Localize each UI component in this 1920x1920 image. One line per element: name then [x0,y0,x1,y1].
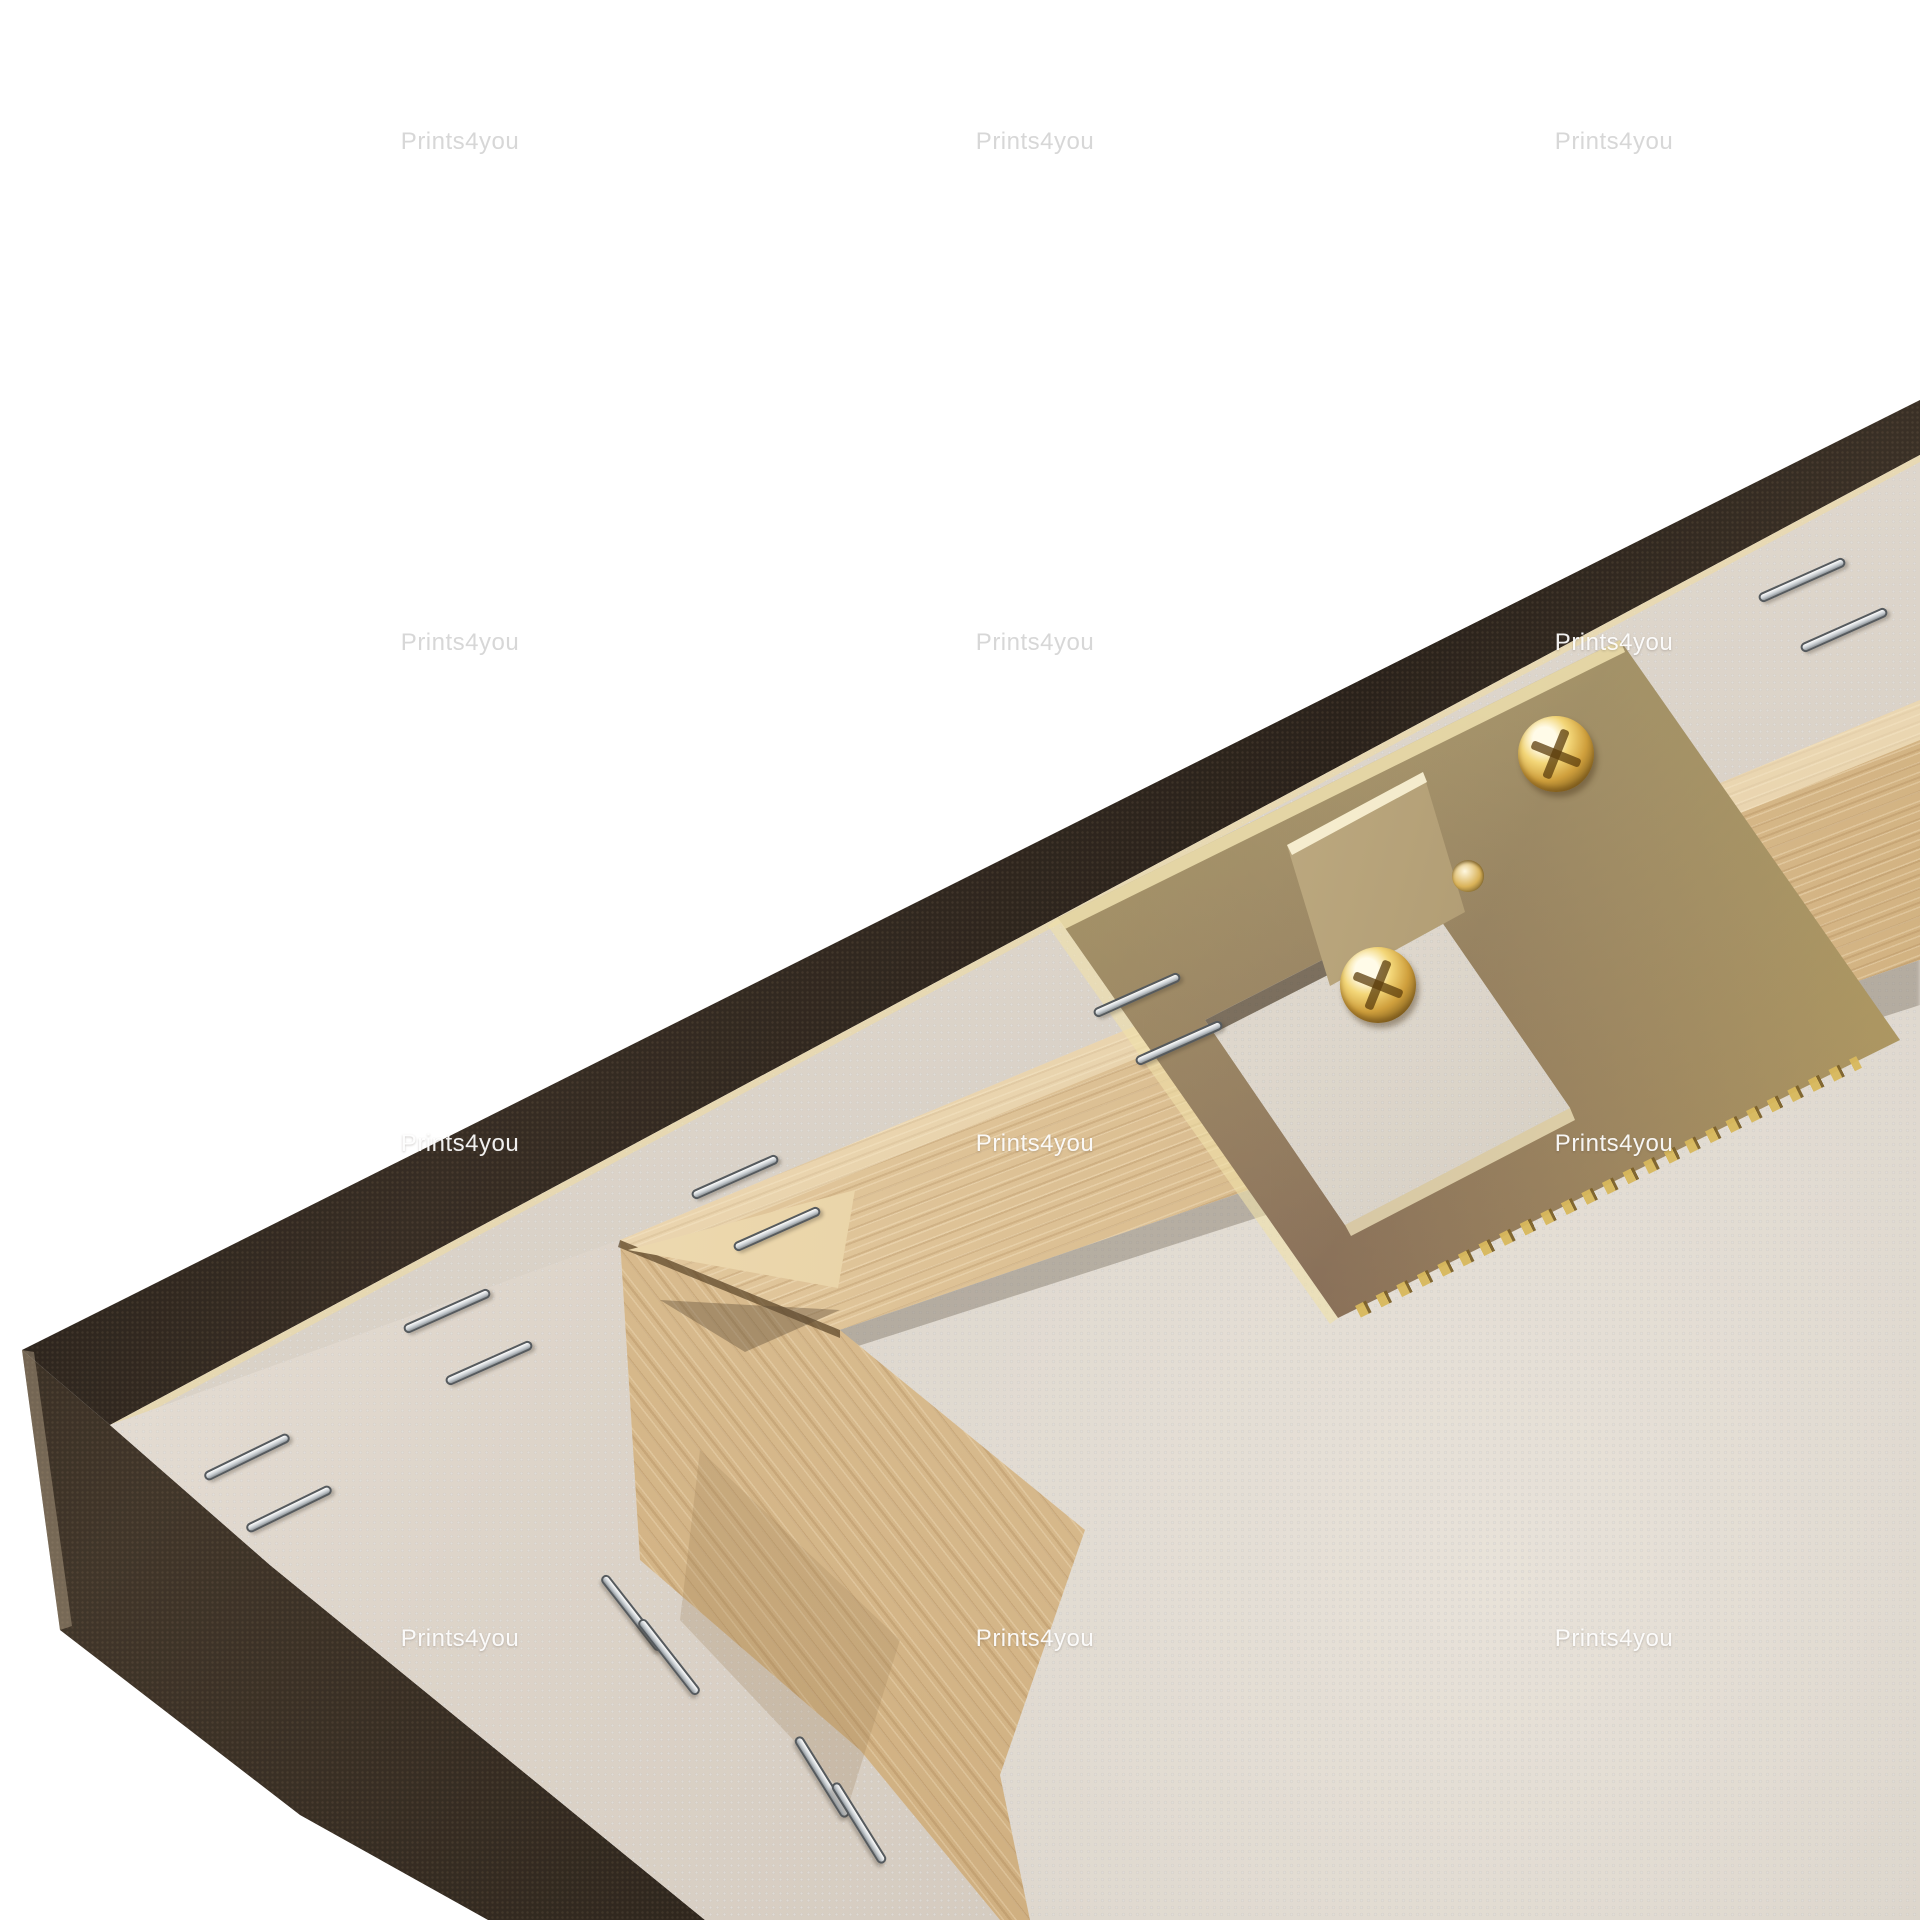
watermark-text: Prints4you [976,128,1094,156]
watermark-text: Prints4you [976,629,1094,657]
watermark-text: Prints4you [976,1625,1094,1653]
watermark-text: Prints4you [401,629,519,657]
watermark-text: Prints4you [1555,128,1673,156]
watermark-text: Prints4you [976,1130,1094,1158]
watermark-layer: Prints4youPrints4youPrints4youPrints4you… [0,0,1920,1920]
watermark-text: Prints4you [401,1130,519,1158]
canvas-print-back-photo: Prints4youPrints4youPrints4youPrints4you… [0,0,1920,1920]
watermark-text: Prints4you [1555,629,1673,657]
watermark-text: Prints4you [401,128,519,156]
watermark-text: Prints4you [401,1625,519,1653]
watermark-text: Prints4you [1555,1130,1673,1158]
watermark-text: Prints4you [1555,1625,1673,1653]
